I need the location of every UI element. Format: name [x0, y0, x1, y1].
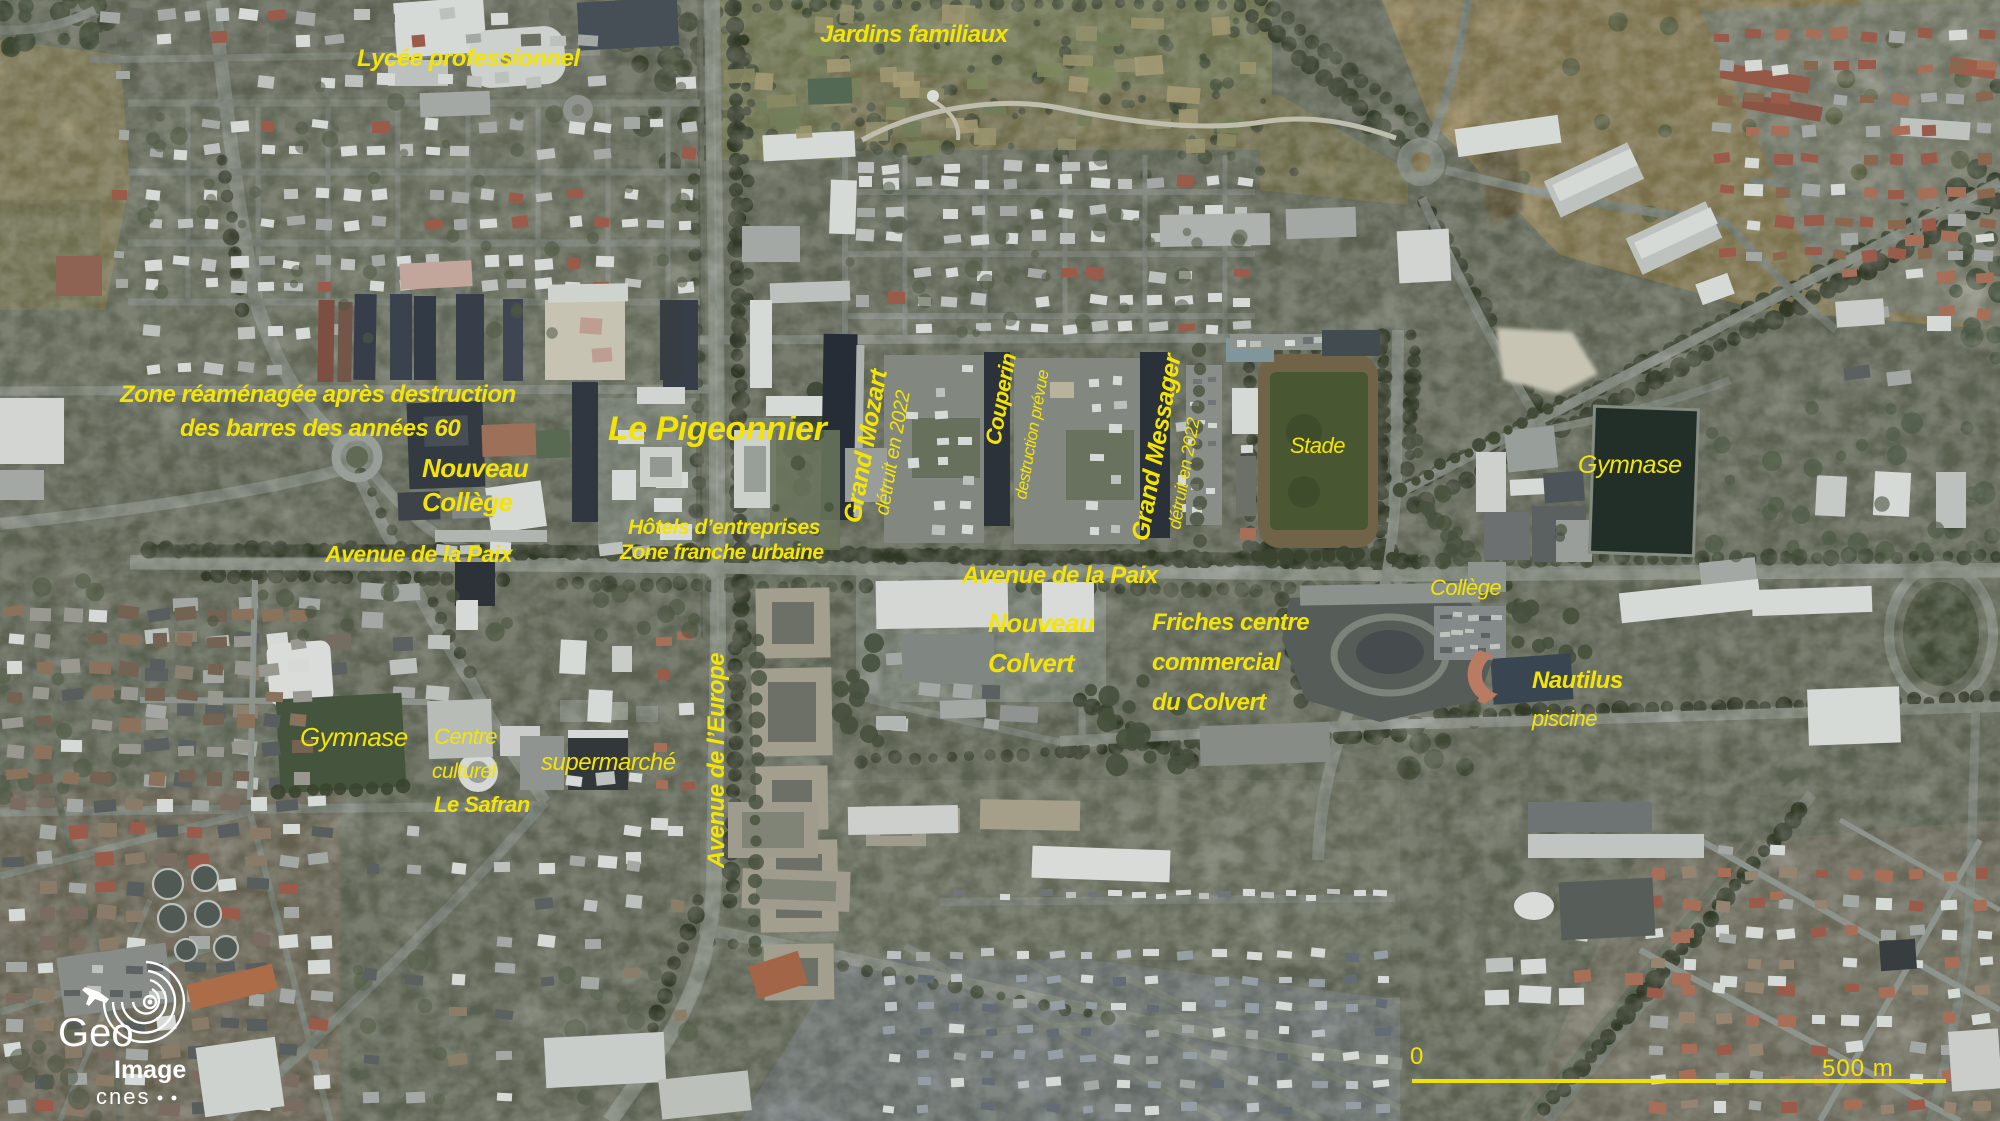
svg-text:Nautilus: Nautilus	[1532, 667, 1623, 694]
svg-text:Gymnase: Gymnase	[1578, 451, 1681, 479]
svg-text:Le Safran: Le Safran	[434, 792, 530, 817]
svg-text:commercial: commercial	[1152, 649, 1282, 676]
svg-text:Collège: Collège	[422, 487, 512, 517]
svg-text:des barres des années 60: des barres des années 60	[180, 415, 461, 442]
svg-text:Avenue de la Paix: Avenue de la Paix	[961, 562, 1160, 589]
svg-text:Jardins familiaux: Jardins familiaux	[820, 21, 1010, 48]
svg-text:Avenue de la Paix: Avenue de la Paix	[324, 541, 514, 567]
svg-text:500 m: 500 m	[1822, 1055, 1894, 1082]
svg-text:supermarché: supermarché	[541, 749, 676, 776]
svg-text:Lycée professionnel: Lycée professionnel	[357, 45, 581, 72]
svg-text:Collège: Collège	[1430, 575, 1501, 600]
svg-text:Stade: Stade	[1290, 433, 1345, 458]
svg-text:cnes: cnes	[96, 1084, 150, 1109]
svg-text:0: 0	[1410, 1043, 1423, 1070]
svg-text:Zone franche urbaine: Zone franche urbaine	[619, 541, 824, 564]
svg-text:Colvert: Colvert	[988, 648, 1076, 678]
svg-text:Image: Image	[114, 1056, 186, 1084]
svg-text:Gymnase: Gymnase	[300, 722, 408, 752]
svg-text:Geo: Geo	[58, 1011, 134, 1055]
svg-text:piscine: piscine	[1531, 706, 1597, 731]
svg-text:culturel: culturel	[432, 760, 498, 783]
svg-text:Zone réaménagée après destruct: Zone réaménagée après destruction	[119, 381, 516, 408]
svg-text:Nouveau: Nouveau	[422, 453, 529, 483]
svg-text:Nouveau: Nouveau	[988, 608, 1095, 638]
svg-text:Hôtels d’entreprises: Hôtels d’entreprises	[628, 516, 820, 539]
svg-text:Centre: Centre	[434, 724, 497, 749]
svg-text:du Colvert: du Colvert	[1152, 689, 1267, 716]
svg-text:Avenue de l’Europe: Avenue de l’Europe	[703, 653, 730, 869]
svg-text:Friches centre: Friches centre	[1152, 609, 1309, 636]
svg-text:Le Pigeonnier: Le Pigeonnier	[608, 410, 829, 448]
